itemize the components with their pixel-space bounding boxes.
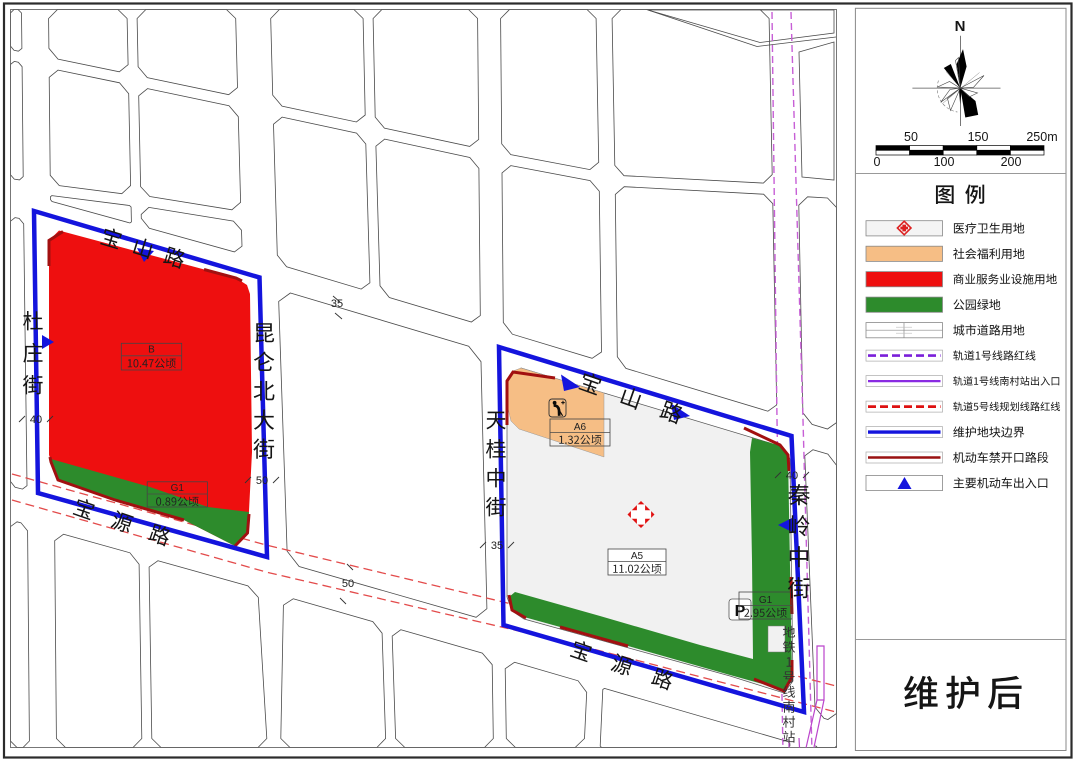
svg-text:200: 200 bbox=[1001, 155, 1022, 169]
svg-text:50: 50 bbox=[256, 475, 268, 487]
svg-text:50: 50 bbox=[904, 130, 918, 144]
svg-text:0: 0 bbox=[874, 155, 881, 169]
svg-text:A6: A6 bbox=[574, 422, 587, 433]
svg-text:A5: A5 bbox=[631, 551, 644, 562]
svg-text:40: 40 bbox=[30, 414, 42, 426]
svg-text:250m: 250m bbox=[1026, 130, 1057, 144]
svg-text:G1: G1 bbox=[759, 595, 773, 606]
svg-text:100: 100 bbox=[934, 155, 955, 169]
svg-text:150: 150 bbox=[968, 130, 989, 144]
svg-text:50: 50 bbox=[342, 578, 354, 590]
svg-text:N: N bbox=[955, 18, 966, 35]
svg-text:35: 35 bbox=[491, 540, 503, 552]
svg-text:B: B bbox=[148, 345, 155, 356]
svg-text:40: 40 bbox=[786, 470, 798, 482]
svg-text:G1: G1 bbox=[171, 483, 185, 494]
